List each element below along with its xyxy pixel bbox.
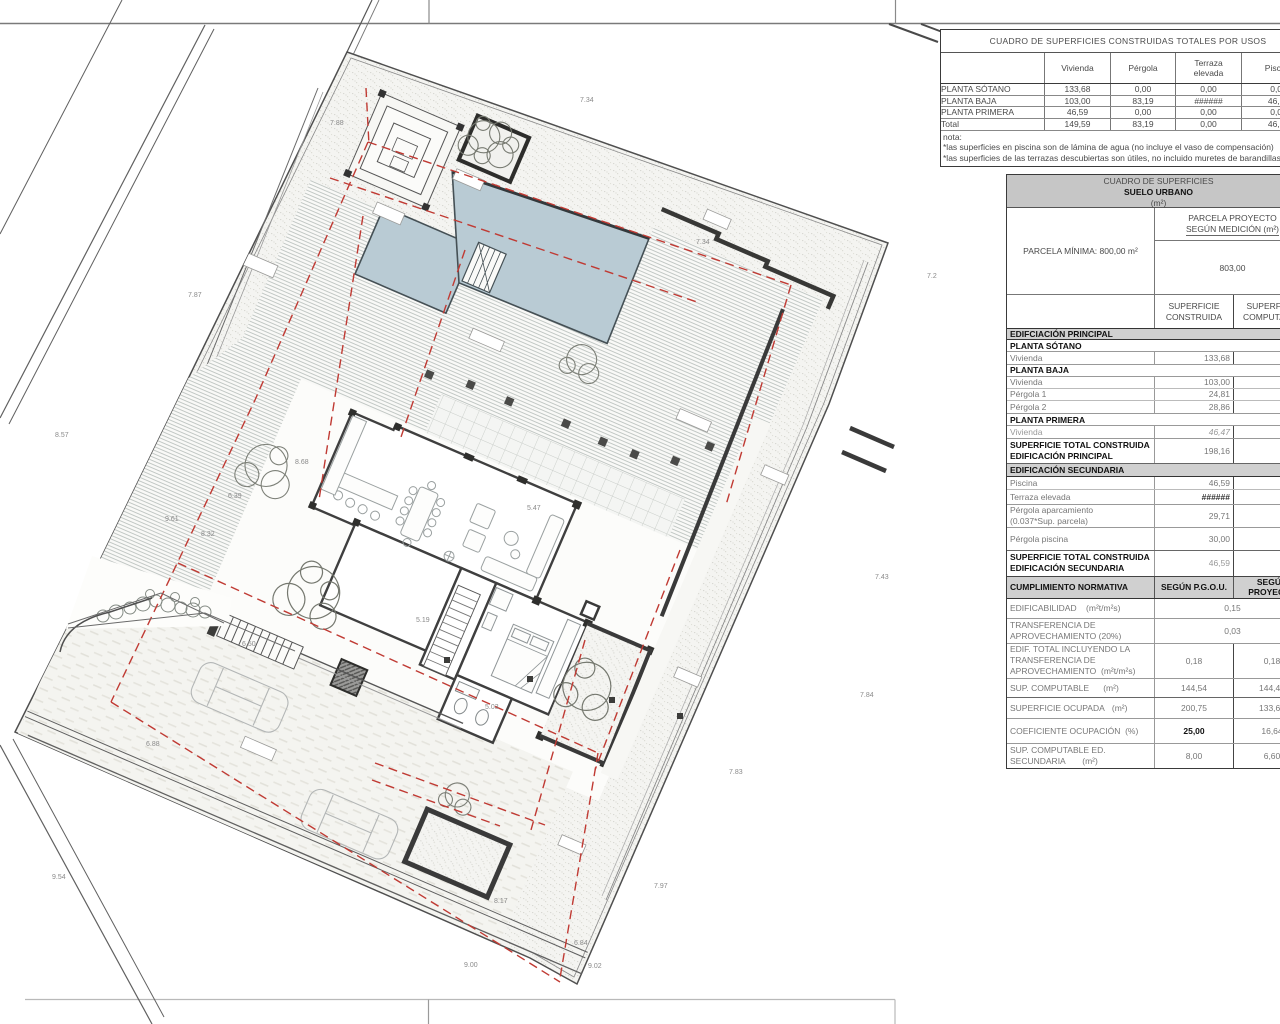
svg-text:6.88: 6.88 bbox=[146, 741, 160, 748]
svg-text:7.83: 7.83 bbox=[729, 769, 743, 776]
svg-text:7.2: 7.2 bbox=[927, 273, 937, 280]
svg-text:7.34: 7.34 bbox=[696, 239, 710, 246]
svg-text:9.54: 9.54 bbox=[52, 874, 66, 881]
svg-text:9.61: 9.61 bbox=[165, 516, 179, 523]
svg-text:9.00: 9.00 bbox=[464, 962, 478, 969]
svg-text:8.57: 8.57 bbox=[55, 432, 69, 439]
svg-text:7.88: 7.88 bbox=[330, 120, 344, 127]
svg-text:5.03: 5.03 bbox=[485, 704, 499, 711]
svg-text:7.87: 7.87 bbox=[188, 292, 202, 299]
svg-text:7.43: 7.43 bbox=[875, 574, 889, 581]
svg-text:6.84: 6.84 bbox=[574, 940, 588, 947]
svg-text:8.32: 8.32 bbox=[201, 531, 215, 538]
svg-text:9.02: 9.02 bbox=[588, 963, 602, 970]
svg-text:7.34: 7.34 bbox=[580, 97, 594, 104]
svg-text:8.68: 8.68 bbox=[295, 459, 309, 466]
svg-text:6.39: 6.39 bbox=[228, 493, 242, 500]
svg-text:6.50: 6.50 bbox=[242, 641, 256, 648]
svg-text:5.47: 5.47 bbox=[527, 505, 541, 512]
svg-text:7.97: 7.97 bbox=[654, 883, 668, 890]
svg-text:8.17: 8.17 bbox=[494, 898, 508, 905]
svg-text:7.84: 7.84 bbox=[860, 692, 874, 699]
svg-text:5.19: 5.19 bbox=[416, 617, 430, 624]
